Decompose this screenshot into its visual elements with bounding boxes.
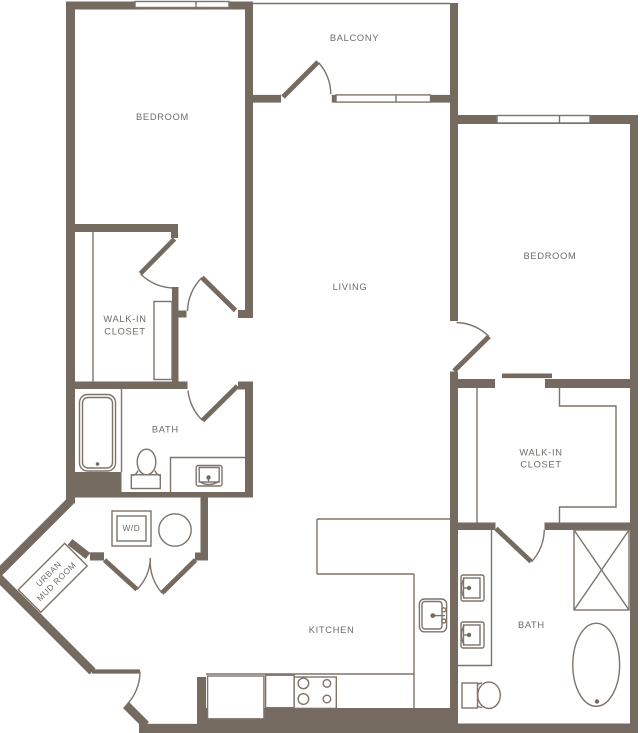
svg-text:W/D: W/D <box>123 523 141 533</box>
svg-text:BEDROOM: BEDROOM <box>524 251 577 261</box>
svg-text:KITCHEN: KITCHEN <box>309 625 355 635</box>
svg-text:LIVING: LIVING <box>333 282 368 292</box>
svg-text:BALCONY: BALCONY <box>330 33 379 43</box>
svg-text:WALK-IN: WALK-IN <box>519 448 562 458</box>
svg-text:WALK-IN: WALK-IN <box>103 314 146 324</box>
svg-text:BEDROOM: BEDROOM <box>136 112 189 122</box>
svg-text:BATH: BATH <box>518 620 545 630</box>
svg-text:CLOSET: CLOSET <box>520 460 561 470</box>
svg-text:BATH: BATH <box>152 425 179 435</box>
svg-text:CLOSET: CLOSET <box>104 327 145 337</box>
